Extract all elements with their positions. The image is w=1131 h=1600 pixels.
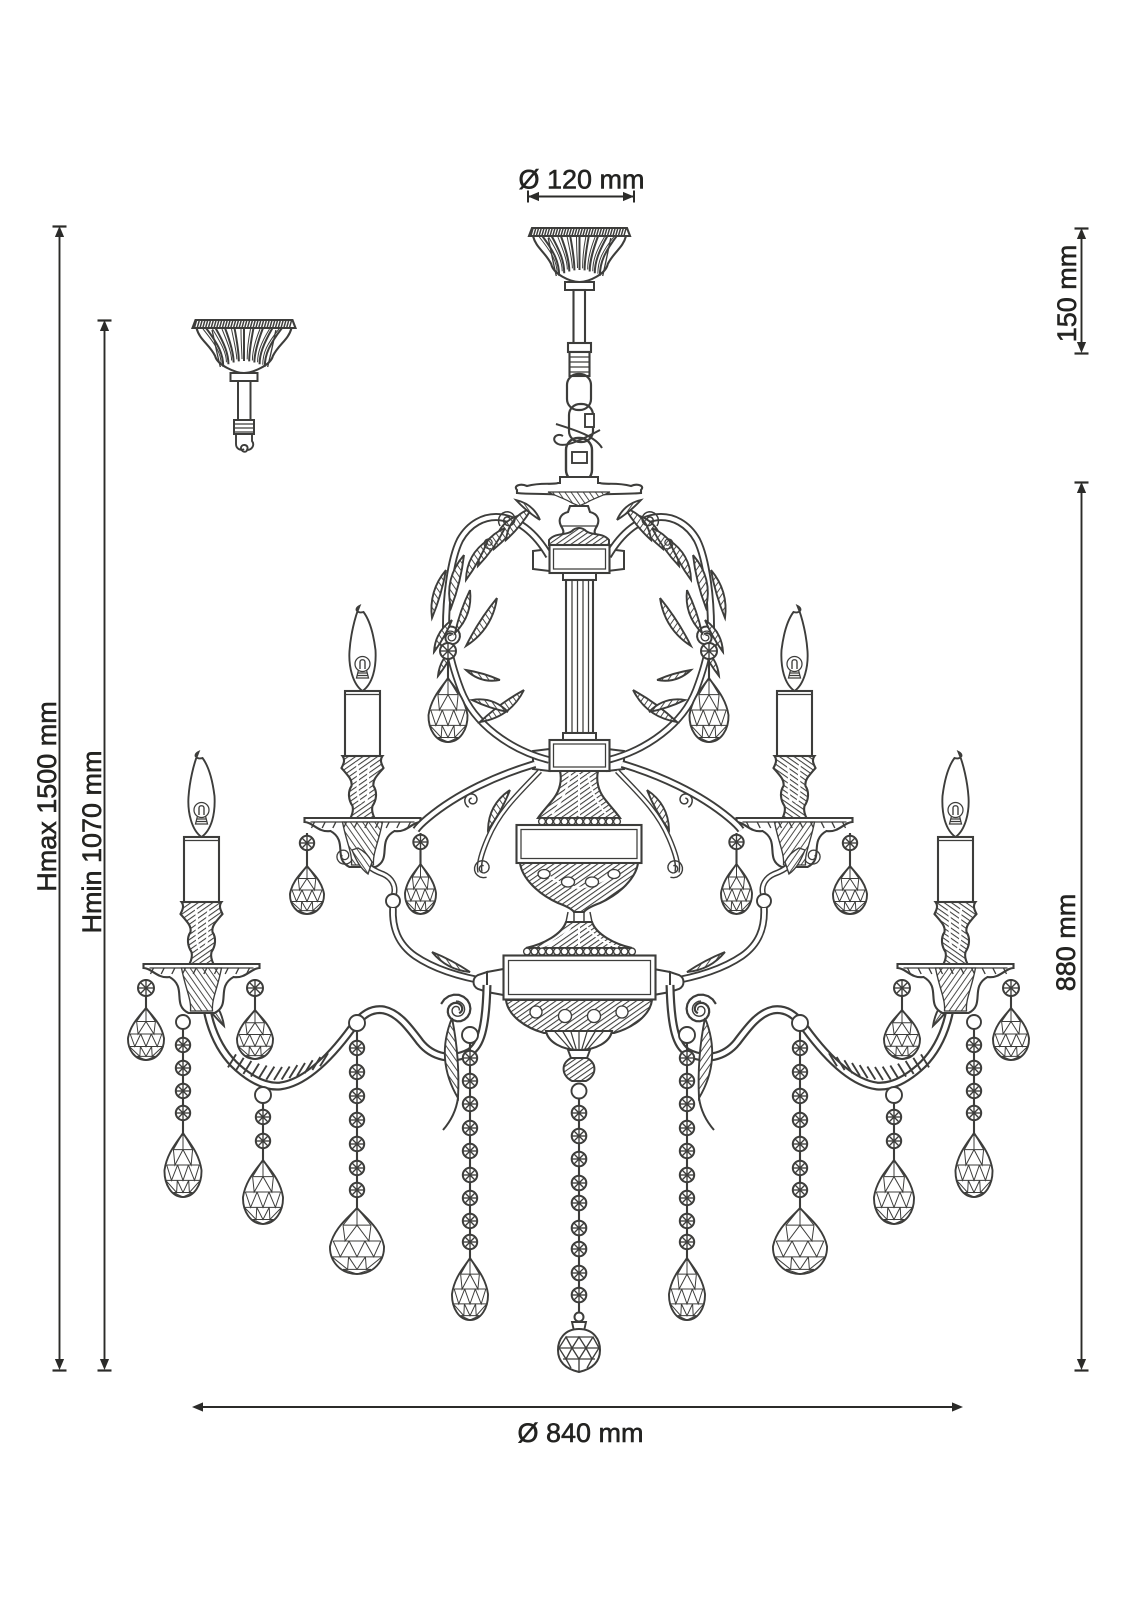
svg-text:Ø 840 mm: Ø 840 mm bbox=[517, 1418, 643, 1448]
svg-text:Hmin 1070 mm: Hmin 1070 mm bbox=[77, 750, 107, 933]
svg-text:Ø 120 mm: Ø 120 mm bbox=[518, 165, 644, 195]
svg-text:880 mm: 880 mm bbox=[1051, 894, 1081, 992]
svg-text:150 mm: 150 mm bbox=[1052, 245, 1082, 343]
svg-text:Hmax 1500 mm: Hmax 1500 mm bbox=[32, 701, 62, 892]
